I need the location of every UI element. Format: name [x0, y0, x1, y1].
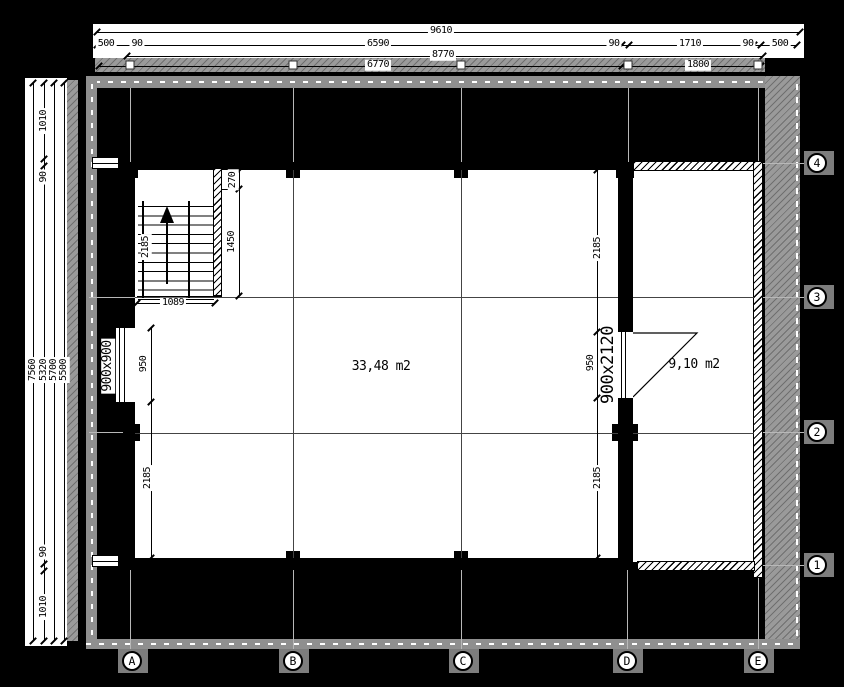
grid-bubble-4: 4	[807, 153, 827, 173]
dim-text-90-bottom: 90	[39, 544, 50, 559]
axis-2-interior-right	[633, 433, 754, 434]
dim-text-right-2185-top: 2185	[593, 235, 604, 261]
dim-text-1450: 1450	[227, 229, 238, 255]
left-door-leaf2	[124, 328, 125, 402]
dim-text-6770: 6770	[365, 60, 391, 71]
grid-bubble-3: 3	[807, 287, 827, 307]
column-marker	[624, 61, 633, 70]
right-room-area-label: 9,10 m2	[668, 358, 719, 372]
right-door-size-label: 900x2120	[600, 326, 618, 404]
stair-direction-arrow-shaft	[166, 222, 168, 284]
grid-line-4	[763, 163, 807, 164]
dim-text-9610: 9610	[428, 26, 454, 37]
dim-text-90-top: 90	[39, 169, 50, 184]
column-marker	[754, 61, 763, 70]
left-window-bottom	[92, 555, 119, 567]
dim-text-500: 500	[96, 39, 117, 50]
dim-text-1010-bottom: 1010	[39, 594, 50, 620]
axis-2-interior	[135, 433, 618, 434]
right-room-right-wall	[753, 161, 763, 578]
dim-text-1800: 1800	[685, 60, 711, 71]
column-marker	[457, 61, 466, 70]
dim-text-90: 90	[129, 39, 144, 50]
dim-text-right-950: 950	[586, 353, 597, 374]
grid-line-c	[461, 88, 462, 164]
dim-text-1089: 1089	[160, 298, 186, 309]
grid-line-2	[763, 432, 807, 433]
top-outer-dashed-band	[95, 76, 800, 88]
dim-text-8770: 8770	[430, 50, 456, 61]
stair-partition-wall	[213, 168, 222, 296]
right-room-top-wall	[633, 161, 763, 171]
grid-line-a	[130, 88, 131, 164]
grid-bubble-1: 1	[807, 555, 827, 575]
column-a4	[123, 162, 138, 178]
grid-bubble-b: B	[283, 651, 303, 671]
dim-text-right-2185-bottom: 2185	[593, 465, 604, 491]
column-marker	[126, 61, 135, 70]
dim-line-6770-1800	[99, 66, 761, 67]
right-wall-band	[765, 76, 800, 641]
grid-bubble-2: 2	[807, 422, 827, 442]
dim-text-left-2185: 2185	[143, 465, 154, 491]
dim-text-90: 90	[740, 39, 755, 50]
stair-rail-right	[188, 201, 190, 298]
grid-line-c-bottom	[461, 570, 462, 651]
grid-line-b	[293, 88, 294, 164]
axis-b-interior	[293, 170, 294, 558]
grid-line-3	[763, 297, 807, 298]
grid-line-1	[763, 565, 807, 566]
right-room-bottom-wall	[637, 561, 755, 571]
grid-bubble-d: D	[617, 651, 637, 671]
left-door-leaf	[119, 328, 120, 402]
column-marker	[289, 61, 298, 70]
dim-text-1010-top: 1010	[39, 108, 50, 134]
grid-bubble-e: E	[748, 651, 768, 671]
stair-direction-arrow-icon	[160, 206, 174, 223]
left-door-size-label: 900x900	[101, 338, 115, 393]
dim-text-left-950: 950	[139, 354, 150, 375]
grid-line-e-bottom	[758, 578, 759, 651]
grid-bubble-c: C	[453, 651, 473, 671]
grid-line-b-bottom	[293, 570, 294, 651]
grid-bubble-a: A	[122, 651, 142, 671]
grid-line-e	[758, 88, 759, 162]
dim-text-5500: 5500	[59, 357, 70, 383]
main-room-area-label: 33,48 m2	[352, 360, 411, 374]
left-window-top	[92, 157, 119, 169]
bottom-outer-dashed-band	[86, 639, 800, 649]
dim-text-500: 500	[770, 39, 791, 50]
column-d4	[616, 162, 634, 178]
dim-text-270: 270	[228, 170, 239, 191]
grid-line-a-bottom	[130, 570, 131, 651]
axis-c-interior	[461, 170, 462, 558]
floor-plan-drawing: 9610 500 90 6590 90 1710 90 500 8770 677…	[0, 0, 844, 687]
dim-text-90: 90	[606, 39, 621, 50]
dim-text-1710: 1710	[677, 39, 703, 50]
right-outer-dashed-line	[796, 84, 798, 640]
right-door-leaf	[621, 332, 622, 398]
dim-text-stair-2185: 2185	[141, 234, 152, 260]
dim-text-7560: 7560	[28, 357, 39, 383]
axis-3-interior-right	[633, 297, 754, 298]
grid-line-3-left	[89, 297, 135, 298]
grid-line-d	[628, 88, 629, 164]
grid-line-d-bottom	[627, 570, 628, 651]
right-door-leaf2	[625, 332, 626, 398]
dim-line-left-950-2185	[151, 328, 152, 558]
dim-text-6590: 6590	[365, 39, 391, 50]
